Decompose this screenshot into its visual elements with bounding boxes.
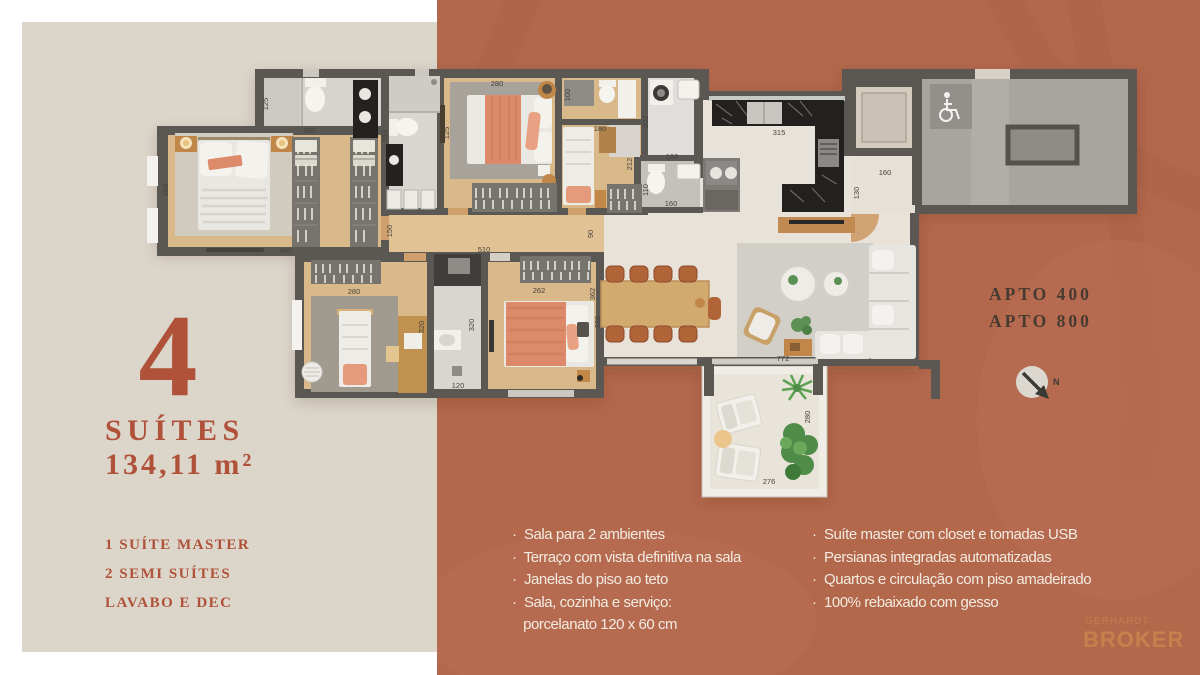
- svg-text:315: 315: [773, 128, 786, 137]
- svg-text:180: 180: [594, 124, 607, 133]
- svg-text:160: 160: [879, 168, 892, 177]
- svg-text:100: 100: [563, 89, 572, 102]
- svg-text:90: 90: [586, 230, 595, 238]
- svg-text:320: 320: [467, 319, 476, 332]
- svg-text:320: 320: [593, 316, 602, 329]
- svg-text:160: 160: [666, 152, 679, 161]
- svg-text:125: 125: [442, 127, 451, 140]
- svg-text:490: 490: [280, 246, 293, 255]
- svg-text:280: 280: [304, 126, 317, 135]
- svg-text:150: 150: [385, 225, 394, 238]
- svg-text:110: 110: [641, 184, 650, 196]
- svg-text:510: 510: [478, 245, 491, 254]
- svg-text:320: 320: [417, 321, 426, 334]
- svg-text:120: 120: [452, 381, 465, 390]
- svg-text:125: 125: [261, 98, 270, 111]
- svg-text:772: 772: [777, 354, 790, 363]
- svg-text:212: 212: [625, 158, 634, 171]
- svg-text:130: 130: [852, 187, 861, 200]
- svg-text:280: 280: [803, 411, 812, 424]
- svg-text:276: 276: [763, 477, 776, 486]
- svg-text:262: 262: [533, 286, 546, 295]
- svg-text:280: 280: [348, 287, 361, 296]
- svg-text:362: 362: [588, 288, 597, 301]
- svg-text:284: 284: [161, 184, 170, 197]
- svg-text:280: 280: [491, 79, 504, 88]
- svg-text:202: 202: [641, 116, 650, 129]
- svg-text:160: 160: [665, 199, 678, 208]
- svg-text:N: N: [1053, 377, 1060, 387]
- svg-text:263: 263: [380, 130, 389, 143]
